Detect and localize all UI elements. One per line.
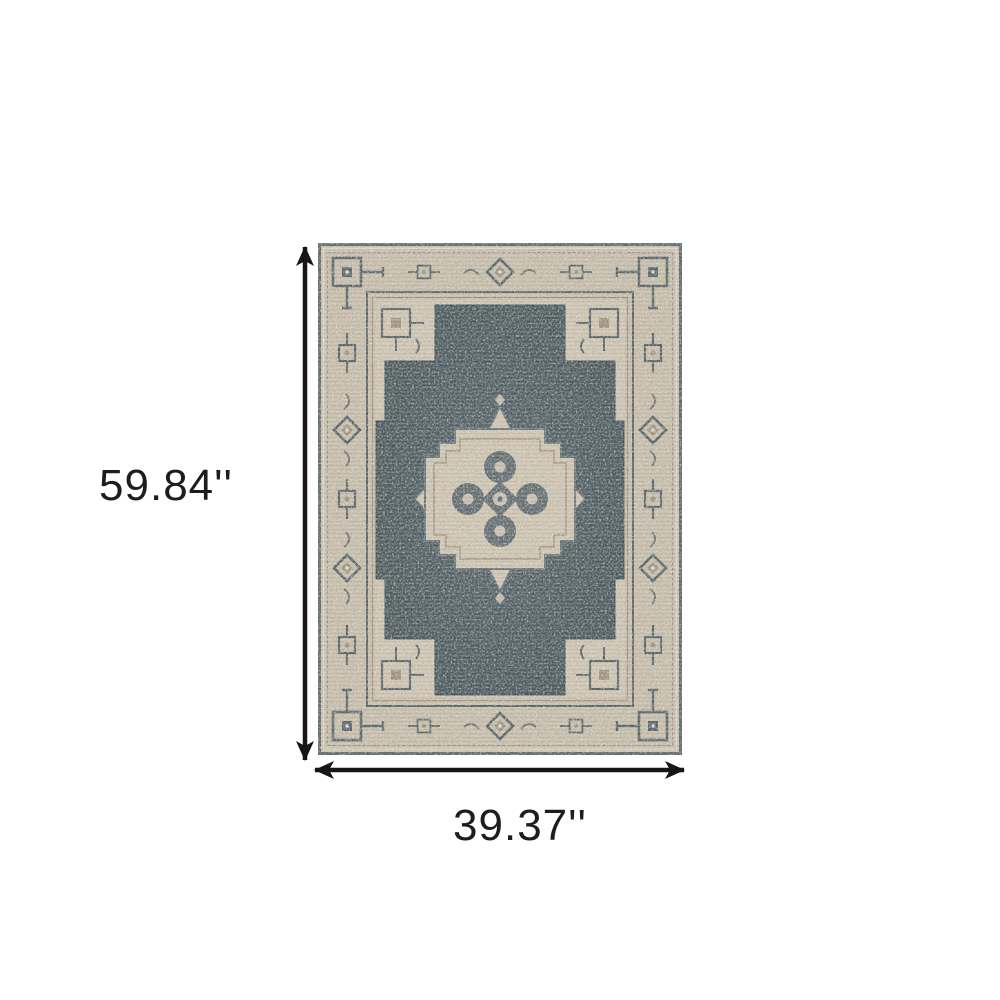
rug-drawing (318, 243, 682, 755)
rug-texture-overlay (318, 243, 682, 755)
width-dimension-label: 39.37'' (440, 802, 600, 850)
product-dimension-figure: 59.84'' 39.37'' (0, 0, 1000, 1000)
rug-image (318, 243, 682, 755)
height-dimension-label: 59.84'' (86, 462, 246, 510)
